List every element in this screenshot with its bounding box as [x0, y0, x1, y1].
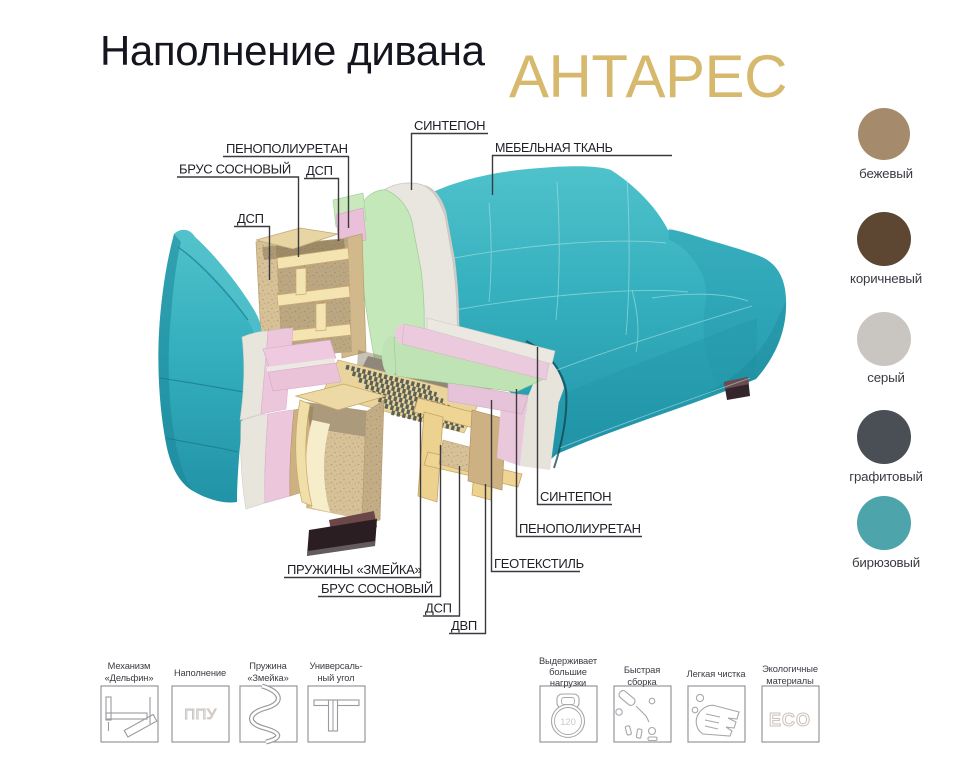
svg-text:Пружина: Пружина	[249, 661, 287, 671]
svg-text:серый: серый	[867, 370, 904, 385]
svg-text:бежевый: бежевый	[859, 166, 913, 181]
svg-text:«Дельфин»: «Дельфин»	[105, 673, 154, 683]
svg-text:графитовый: графитовый	[849, 469, 922, 484]
svg-text:Наполнение дивана: Наполнение дивана	[100, 27, 486, 74]
svg-text:ГЕОТЕКСТИЛЬ: ГЕОТЕКСТИЛЬ	[494, 556, 584, 571]
svg-text:ДСП: ДСП	[306, 163, 333, 178]
svg-text:Быстрая: Быстрая	[624, 665, 660, 675]
svg-text:большие: большие	[549, 667, 587, 677]
svg-text:ДСП: ДСП	[425, 601, 452, 616]
svg-text:ПЕНОПОЛИУРЕТАН: ПЕНОПОЛИУРЕТАН	[226, 141, 348, 156]
svg-text:ППУ: ППУ	[184, 706, 217, 723]
svg-text:120: 120	[560, 717, 576, 728]
svg-text:БРУС СОСНОВЫЙ: БРУС СОСНОВЫЙ	[179, 162, 291, 177]
svg-text:БРУС СОСНОВЫЙ: БРУС СОСНОВЫЙ	[321, 581, 433, 596]
svg-text:Выдерживает: Выдерживает	[539, 656, 598, 666]
svg-text:АНТАРЕС: АНТАРЕС	[509, 43, 787, 110]
svg-text:ный угол: ный угол	[317, 673, 354, 683]
svg-text:коричневый: коричневый	[850, 271, 922, 286]
svg-text:ДВП: ДВП	[451, 618, 477, 633]
svg-text:ПЕНОПОЛИУРЕТАН: ПЕНОПОЛИУРЕТАН	[519, 521, 641, 536]
svg-text:СИНТЕПОН: СИНТЕПОН	[414, 118, 485, 133]
svg-text:Наполнение: Наполнение	[174, 668, 226, 678]
svg-text:ПРУЖИНЫ «ЗМЕЙКА»: ПРУЖИНЫ «ЗМЕЙКА»	[287, 562, 422, 577]
svg-text:сборка: сборка	[627, 677, 657, 687]
svg-text:материалы: материалы	[766, 676, 814, 686]
svg-text:Легкая чистка: Легкая чистка	[687, 669, 747, 679]
svg-text:ECO: ECO	[769, 710, 811, 730]
svg-text:ДСП: ДСП	[237, 211, 264, 226]
svg-text:МЕБЕЛЬНАЯ ТКАНЬ: МЕБЕЛЬНАЯ ТКАНЬ	[495, 141, 613, 155]
svg-text:«Змейка»: «Змейка»	[247, 673, 288, 683]
svg-text:Экологичные: Экологичные	[762, 664, 818, 674]
svg-text:нагрузки: нагрузки	[550, 678, 586, 688]
svg-text:СИНТЕПОН: СИНТЕПОН	[540, 489, 611, 504]
svg-text:Механизм: Механизм	[108, 661, 151, 671]
svg-text:бирюзовый: бирюзовый	[852, 555, 920, 570]
svg-text:Универсаль-: Универсаль-	[309, 661, 362, 671]
